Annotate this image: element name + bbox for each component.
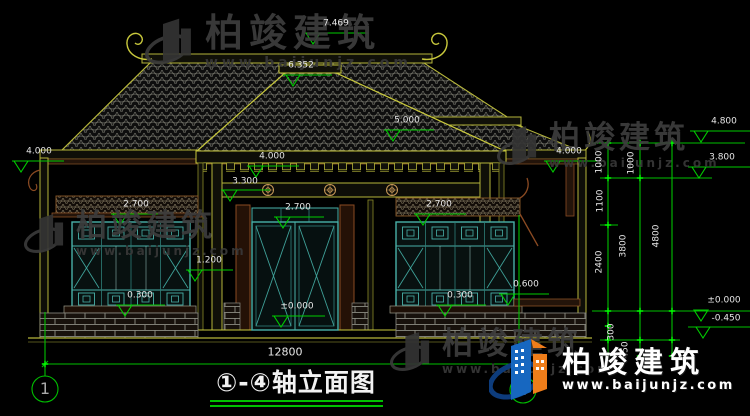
drawing-title: ①-④轴立面图 <box>216 363 376 399</box>
brick-pier-left <box>224 303 240 330</box>
porch-column-left <box>212 163 222 330</box>
elevation-label-right-eave: 4.000 <box>556 148 582 157</box>
elevation-label-left-eave: 4.000 <box>26 148 52 157</box>
elevation-label-wing-ridge: 5.000 <box>394 117 420 126</box>
pent-roof-right <box>396 198 520 216</box>
brand-logo: 柏竣建筑 www.baijunjz.com <box>489 334 735 406</box>
left-wing <box>29 158 202 338</box>
eave-bracket-right <box>566 164 574 216</box>
elevation-label-right-sill: 0.300 <box>447 292 473 301</box>
elevation-label-porch-ridge: 6.352 <box>288 62 314 71</box>
elevation-label-left-window-head: 2.700 <box>123 201 149 210</box>
dim-label-4800: 4800 <box>653 225 662 248</box>
elevation-label-right-ledge: 0.600 <box>513 281 539 290</box>
brick-base-left <box>40 313 198 338</box>
elevation-label-380: 3.800 <box>709 154 735 163</box>
entry-door <box>252 208 338 330</box>
dim-label-1000-a: 1000 <box>596 151 605 174</box>
left-sill-board <box>64 306 196 313</box>
dim-label-total-width: 12800 <box>268 347 303 358</box>
corner-board-right <box>578 158 586 338</box>
brand-logo-text: 柏竣建筑 <box>562 347 735 379</box>
corner-board-left <box>40 158 48 338</box>
brand-logo-icon <box>489 334 555 406</box>
pent-roof-strut <box>520 178 538 246</box>
elevation-label-left-sill: 0.300 <box>127 292 153 301</box>
elevation-label-datum-right: ±0.000 <box>707 297 740 306</box>
dentil-row <box>198 163 504 172</box>
brick-pier-right <box>352 303 368 330</box>
elevation-label-480: 4.800 <box>711 118 737 127</box>
elevation-label-right-window-head: 2.700 <box>426 201 452 210</box>
brand-logo-url: www.baijunjz.com <box>562 378 735 393</box>
elevation-label-porch-lintel: 3.300 <box>232 178 258 187</box>
corbel-left <box>29 170 40 191</box>
right-sill-board <box>390 306 522 313</box>
axis-bubble-1: 1 <box>40 381 50 397</box>
elevation-label-main-ridge: 7.469 <box>323 20 349 29</box>
cad-elevation-drawing: 柏竣建筑 www.baijunjz.com 柏竣建筑 www.baijunjz.… <box>0 0 750 416</box>
elevation-label-floor: ±0.000 <box>280 303 313 312</box>
dim-label-3800: 3800 <box>620 235 629 258</box>
title-underline <box>210 401 383 406</box>
elevation-label-porch-beam: 4.000 <box>259 153 285 162</box>
right-ledge <box>514 299 580 306</box>
elevation-label-ground-right: -0.450 <box>711 315 740 324</box>
dim-label-1100: 1100 <box>597 190 606 213</box>
dim-label-1000-b: 1000 <box>628 152 637 175</box>
dim-label-2400: 2400 <box>596 251 605 274</box>
elevation-label-porch-mid: 1.200 <box>196 257 222 266</box>
elevation-label-door-head: 2.700 <box>285 204 311 213</box>
